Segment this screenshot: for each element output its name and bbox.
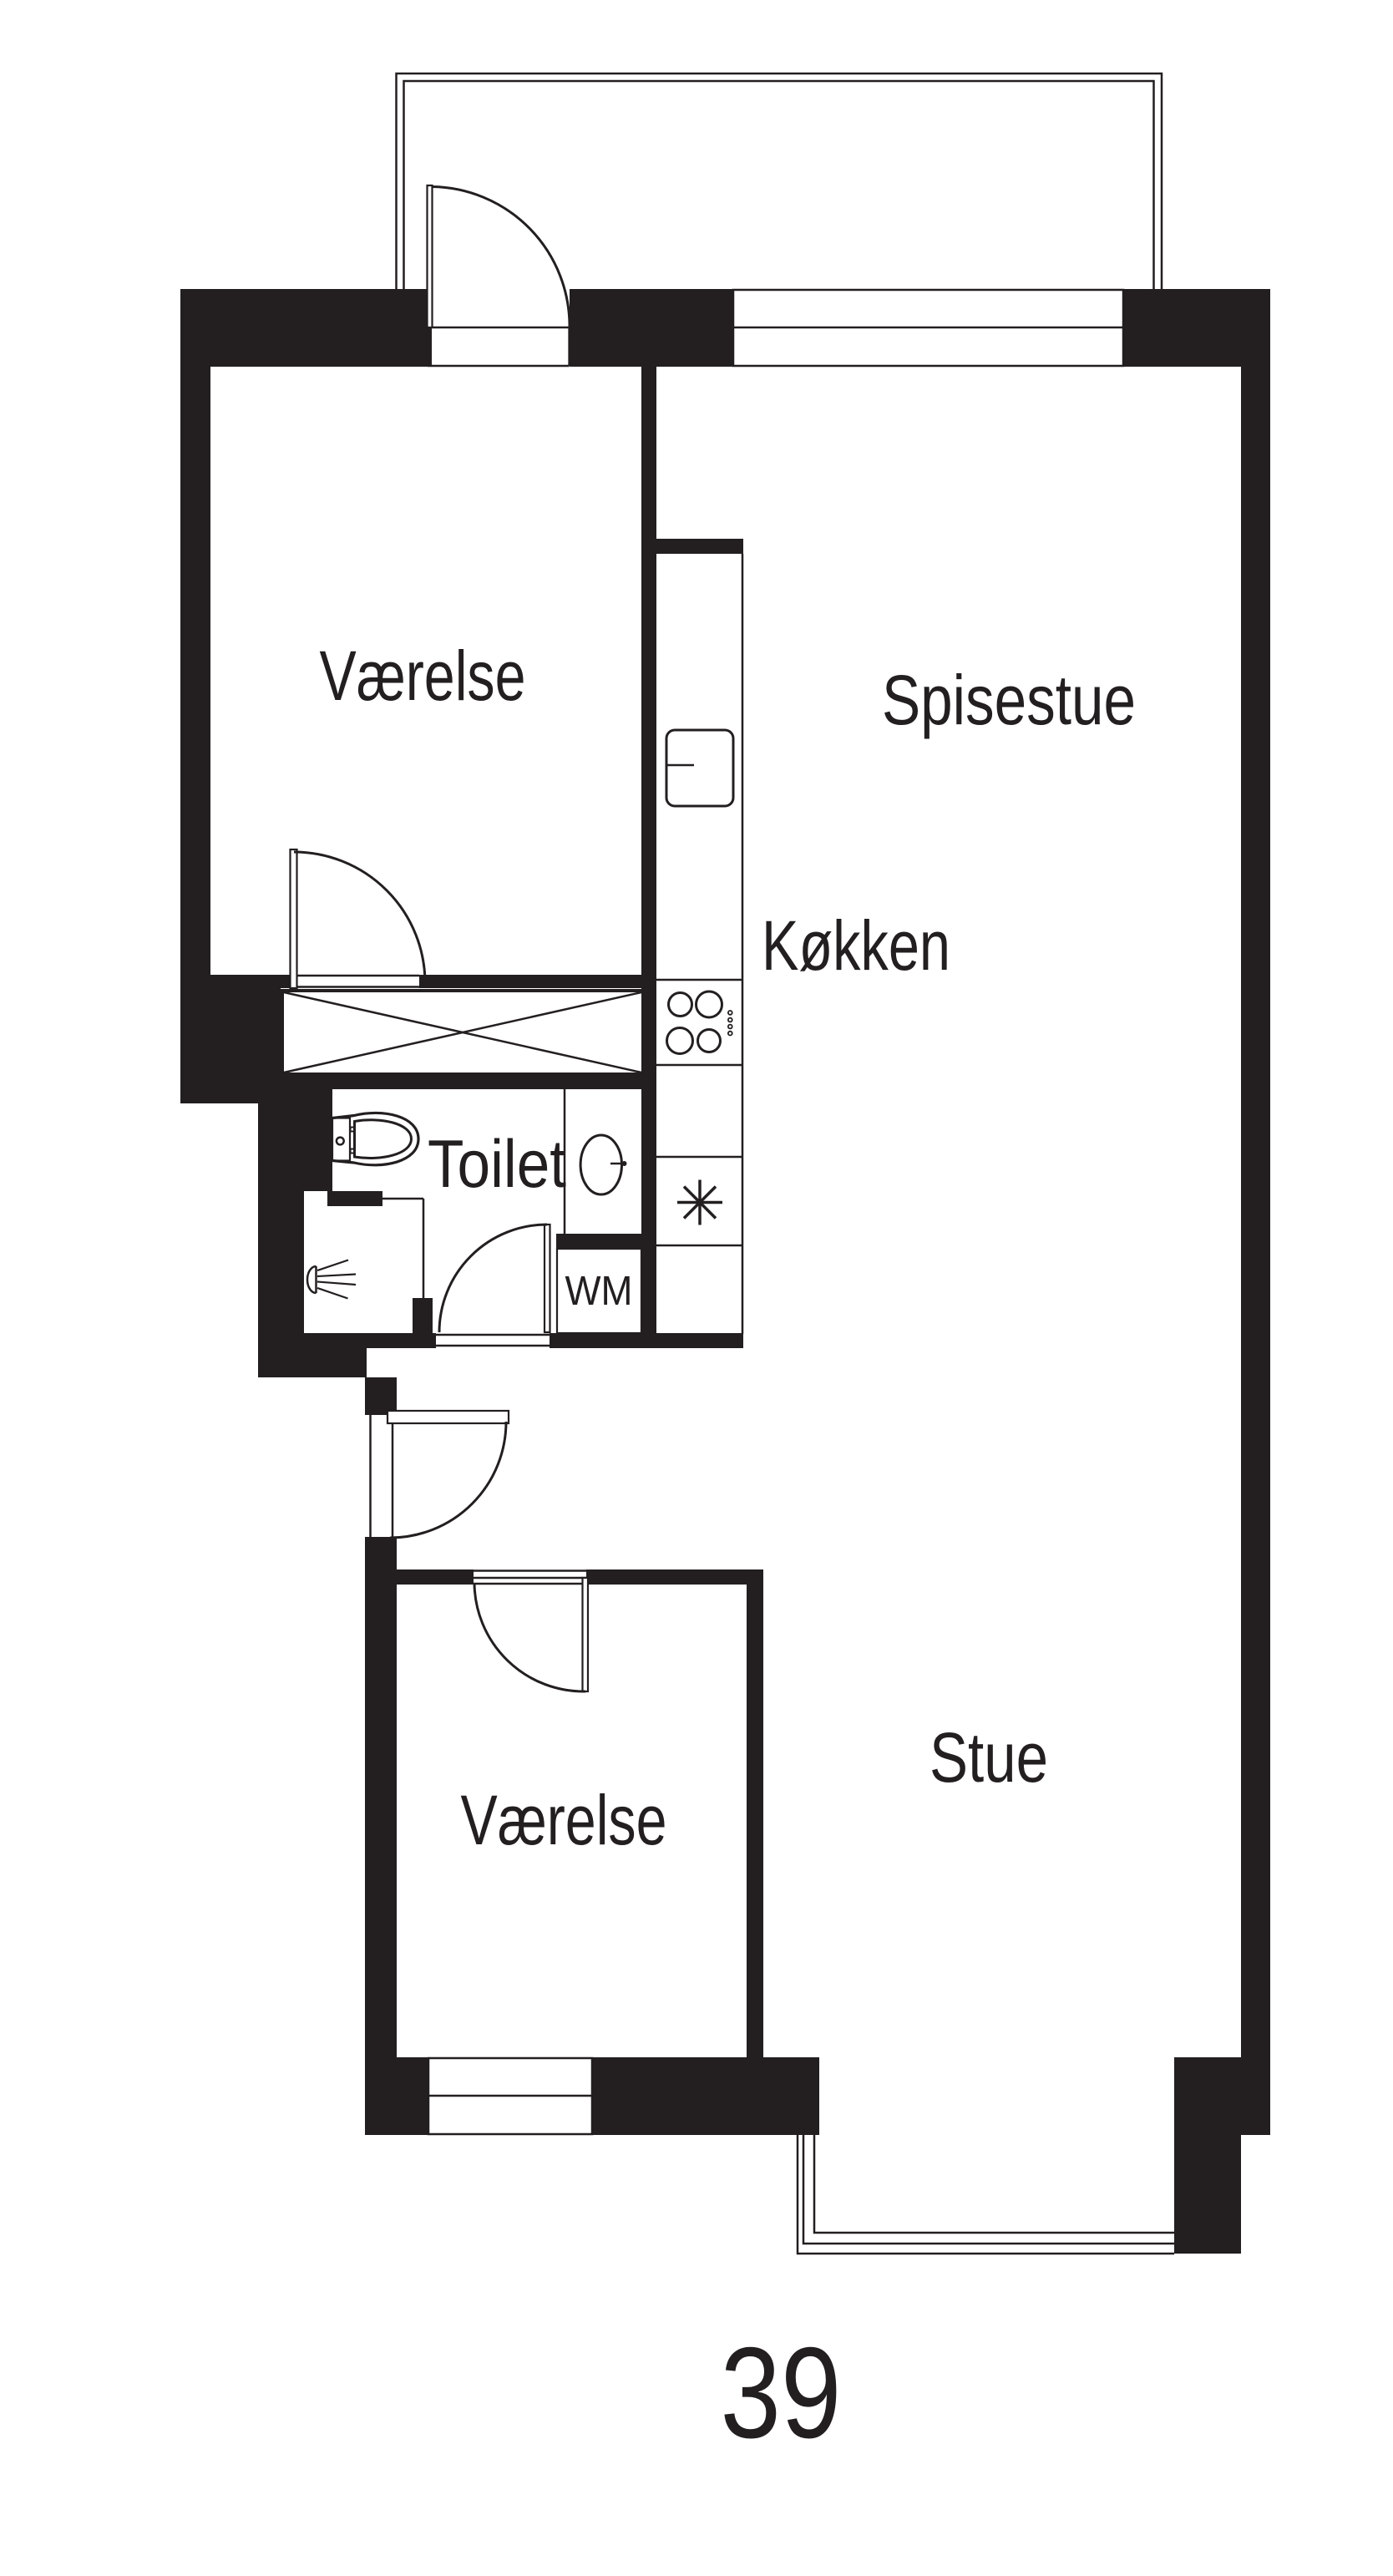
svg-text:39: 39 <box>721 2320 842 2465</box>
svg-text:Stue: Stue <box>930 1718 1048 1797</box>
svg-text:WM: WM <box>565 1269 633 1314</box>
svg-text:Toilet: Toilet <box>428 1127 566 1202</box>
svg-text:Værelse: Værelse <box>320 636 526 715</box>
svg-text:Værelse: Værelse <box>461 1781 667 1859</box>
svg-text:Spisestue: Spisestue <box>882 661 1136 739</box>
svg-text:Køkken: Køkken <box>762 906 950 985</box>
